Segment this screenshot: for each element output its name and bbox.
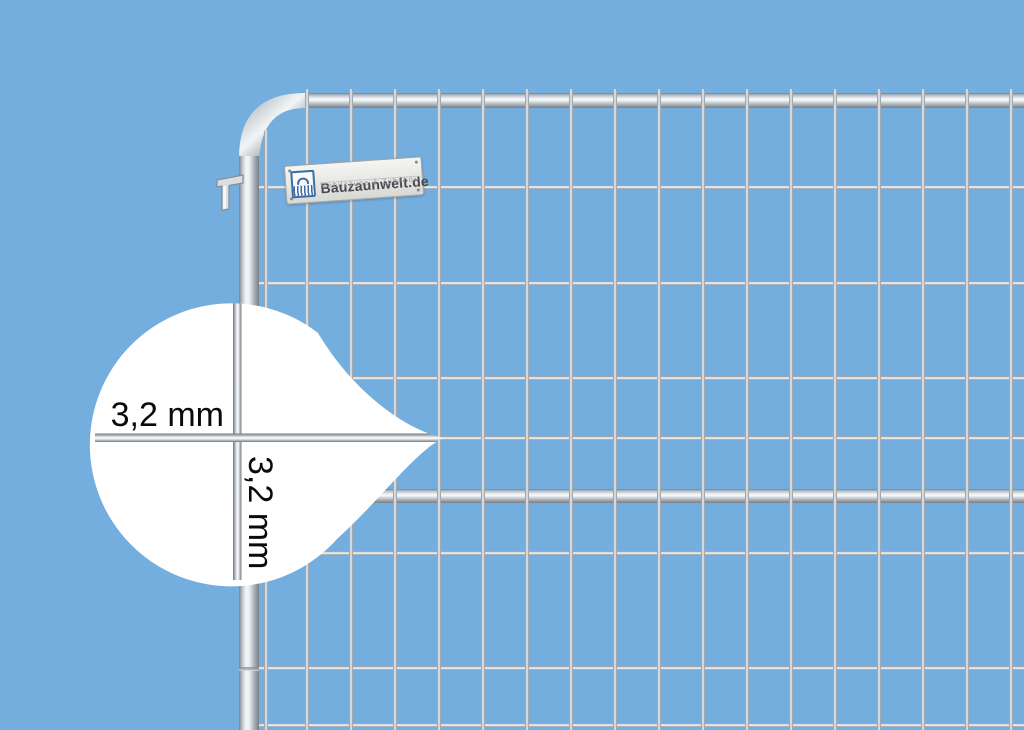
wire-gauge-label-horizontal: 3,2 mm bbox=[111, 396, 224, 434]
plate-screw bbox=[415, 161, 418, 164]
logo-dome-icon bbox=[297, 177, 309, 185]
wire-gauge-label-vertical: 3,2 mm bbox=[241, 456, 279, 569]
logo-fence-bars-icon bbox=[293, 185, 314, 196]
plate-text-block: Bauzaunwelt.de Mobilzäune & Zubehör bbox=[320, 175, 417, 185]
plate-screw bbox=[290, 197, 293, 200]
product-photo: 3,2 mm 3,2 mm Bauzaunwelt.de Mobilzäune … bbox=[0, 0, 1024, 730]
magnified-horizontal-wire bbox=[95, 434, 444, 443]
brand-logo-icon bbox=[290, 170, 316, 199]
magnifier-callout: 3,2 mm 3,2 mm bbox=[0, 0, 1024, 730]
